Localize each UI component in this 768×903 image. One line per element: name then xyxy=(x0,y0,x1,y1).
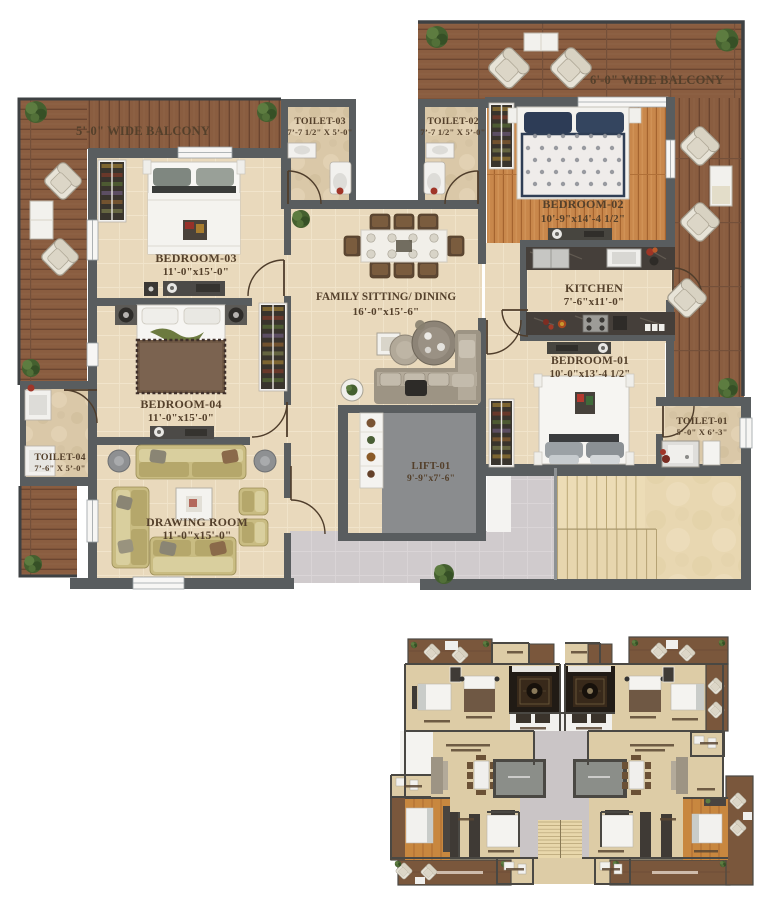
svg-text:BEDROOM-03: BEDROOM-03 xyxy=(155,251,236,265)
svg-text:BEDROOM-02: BEDROOM-02 xyxy=(542,197,623,211)
svg-text:TOILET-03: TOILET-03 xyxy=(294,116,345,127)
svg-text:7’-7 1/2" X 5’-0": 7’-7 1/2" X 5’-0" xyxy=(287,127,352,137)
svg-text:TOILET-04: TOILET-04 xyxy=(34,452,85,463)
svg-text:9'-9"x7'-6": 9'-9"x7'-6" xyxy=(407,474,455,484)
svg-text:10'-9"x14'-4 1/2": 10'-9"x14'-4 1/2" xyxy=(541,213,625,225)
svg-text:10'-0"x13'-4 1/2": 10'-0"x13'-4 1/2" xyxy=(550,369,631,380)
svg-text:LIFT-01: LIFT-01 xyxy=(412,461,451,472)
svg-text:5’-0" X 6’-3": 5’-0" X 6’-3" xyxy=(676,427,727,437)
svg-text:KITCHEN: KITCHEN xyxy=(565,281,623,295)
svg-text:7’-7 1/2" X 5’-0": 7’-7 1/2" X 5’-0" xyxy=(420,127,485,137)
svg-text:5'-0" WIDE BALCONY: 5'-0" WIDE BALCONY xyxy=(76,124,210,138)
svg-text:11'-0"x15'-0": 11'-0"x15'-0" xyxy=(163,266,229,278)
svg-text:11'-0"x15'-0": 11'-0"x15'-0" xyxy=(162,530,231,542)
svg-text:BEDROOM-04: BEDROOM-04 xyxy=(140,397,221,411)
svg-text:FAMILY SITTING/ DINING: FAMILY SITTING/ DINING xyxy=(316,291,456,303)
svg-text:TOILET-01: TOILET-01 xyxy=(676,416,727,427)
svg-text:TOILET-02: TOILET-02 xyxy=(427,116,478,127)
svg-text:7’-6" X 5’-0": 7’-6" X 5’-0" xyxy=(34,463,85,473)
svg-text:7'-6"x11'-0": 7'-6"x11'-0" xyxy=(564,296,624,308)
svg-text:11'-0"x15'-0": 11'-0"x15'-0" xyxy=(148,412,214,424)
svg-text:BEDROOM-01: BEDROOM-01 xyxy=(551,355,629,367)
svg-text:6'-0" WIDE BALCONY: 6'-0" WIDE BALCONY xyxy=(590,73,724,87)
svg-text:DRAWING ROOM: DRAWING ROOM xyxy=(146,515,248,529)
svg-text:16'-0"x15'-6": 16'-0"x15'-6" xyxy=(353,306,420,318)
